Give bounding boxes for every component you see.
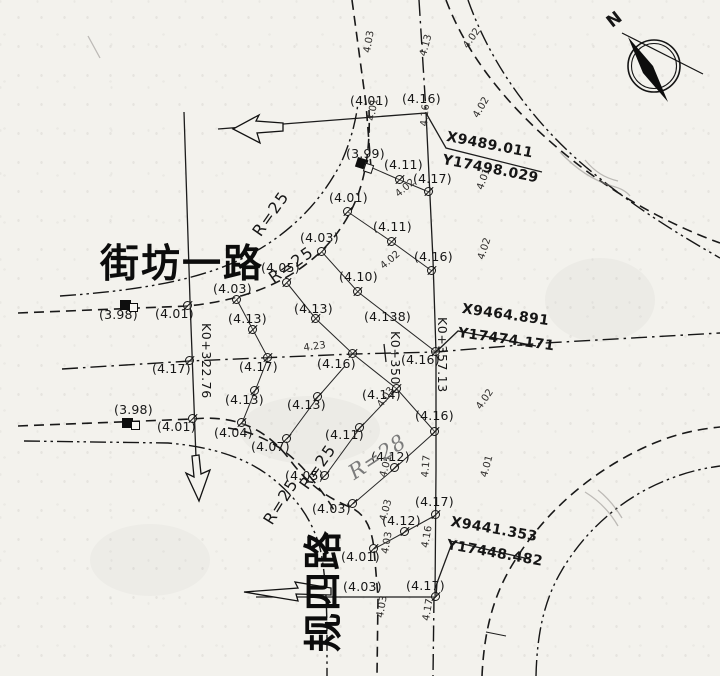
spot-elevation-label: (4.10)	[339, 271, 378, 284]
spot-elevation-label: (4.03)	[312, 503, 351, 516]
survey-point-marker	[431, 347, 440, 356]
survey-point-marker	[353, 287, 362, 296]
survey-point-marker	[311, 314, 320, 323]
survey-point-marker	[431, 510, 440, 519]
spot-elevation-label: (4.17)	[415, 496, 454, 509]
survey-point-marker	[390, 463, 399, 472]
slope-label: 4.17	[421, 455, 433, 478]
slope-label: 4.02	[462, 27, 483, 51]
slope-label: 4.16	[421, 525, 435, 549]
slope-label: 4.02	[379, 250, 402, 272]
survey-point-marker	[427, 266, 436, 275]
survey-point-marker	[343, 207, 352, 216]
slope-label: 4.03	[381, 531, 395, 555]
spot-elevation-label: (4.17)	[239, 361, 278, 374]
benchmark-open-square	[129, 303, 138, 312]
spot-elevation-label: (3.98)	[114, 404, 153, 417]
survey-point-marker	[400, 527, 409, 536]
spot-elevation-label: (4.07)	[251, 441, 290, 454]
slope-label: 4.03	[363, 30, 377, 54]
survey-point-marker	[369, 544, 378, 553]
spot-elevation-label: (4.13)	[228, 313, 267, 326]
road-name-horizontal: 街坊一路	[100, 233, 264, 289]
slope-label: 4.23	[303, 341, 326, 354]
survey-point-marker	[348, 499, 357, 508]
survey-point-marker	[424, 187, 433, 196]
radius-label: R=25	[266, 244, 317, 286]
road-name-vertical: 规四路	[293, 529, 349, 652]
survey-point-marker	[248, 325, 257, 334]
station-label: K0+350	[389, 331, 402, 385]
benchmark-marker	[122, 418, 148, 431]
survey-point-marker	[282, 278, 291, 287]
spot-elevation-label: (4.17)	[413, 173, 452, 186]
survey-point-marker	[355, 423, 364, 432]
survey-point-marker	[313, 392, 322, 401]
station-label: K0+322.76	[200, 323, 213, 399]
survey-point-marker	[250, 386, 259, 395]
radius-label: R=25	[250, 188, 292, 239]
slope-label: 4.01	[480, 454, 495, 478]
radius-label: R=25	[297, 441, 339, 492]
slope-label: 4.02	[475, 388, 496, 412]
survey-point-marker	[431, 592, 440, 601]
survey-point-marker	[320, 471, 329, 480]
slope-label: 4.01	[367, 98, 381, 122]
survey-point-marker	[317, 247, 326, 256]
slope-label: 4.16	[420, 104, 432, 127]
survey-point-marker	[348, 349, 357, 358]
radius-label: R=25	[261, 476, 302, 528]
slope-label: 4.02	[477, 237, 493, 261]
survey-point-marker	[183, 301, 192, 310]
slope-label: 4.03	[376, 595, 390, 619]
spot-elevation-label: (4.13)	[225, 394, 264, 407]
survey-point-marker	[263, 353, 272, 362]
coordinate-y-label: Y17474.171	[457, 326, 555, 353]
slope-label: 4.02	[472, 96, 492, 120]
spot-elevation-label: (4.11)	[384, 159, 423, 172]
benchmark-open-square	[363, 163, 374, 174]
spot-elevation-label: (4.13)	[287, 399, 326, 412]
site-plan-drawing: (4.01)(4.16)(3.99)(4.11)(4.17)(4.01)(4.1…	[0, 0, 720, 676]
spot-elevation-label: (4.16)	[415, 410, 454, 423]
slope-label: 4.13	[419, 33, 434, 57]
spot-elevation-label: (4.17)	[406, 580, 445, 593]
spot-elevation-label: (4.138)	[364, 311, 411, 324]
survey-point-marker	[232, 295, 241, 304]
annotation-layer: (4.01)(4.16)(3.99)(4.11)(4.17)(4.01)(4.1…	[0, 0, 720, 676]
slope-label: 4.17	[422, 598, 436, 622]
spot-elevation-label: (4.11)	[373, 221, 412, 234]
survey-point-marker	[282, 434, 291, 443]
survey-point-marker	[392, 384, 401, 393]
benchmark-marker	[120, 300, 146, 313]
benchmark-open-square	[131, 421, 140, 430]
spot-elevation-label: (4.01)	[157, 421, 196, 434]
survey-point-marker	[185, 356, 194, 365]
survey-point-marker	[387, 237, 396, 246]
spot-elevation-label: (4.16)	[414, 251, 453, 264]
survey-point-marker	[237, 418, 246, 427]
survey-point-marker	[188, 414, 197, 423]
survey-point-marker	[395, 175, 404, 184]
spot-elevation-label: (4.01)	[329, 192, 368, 205]
survey-point-marker	[430, 427, 439, 436]
spot-elevation-label: (4.16)	[317, 358, 356, 371]
coordinate-x-label: X9464.891	[461, 302, 550, 328]
spot-elevation-label: (4.04)	[214, 427, 253, 440]
